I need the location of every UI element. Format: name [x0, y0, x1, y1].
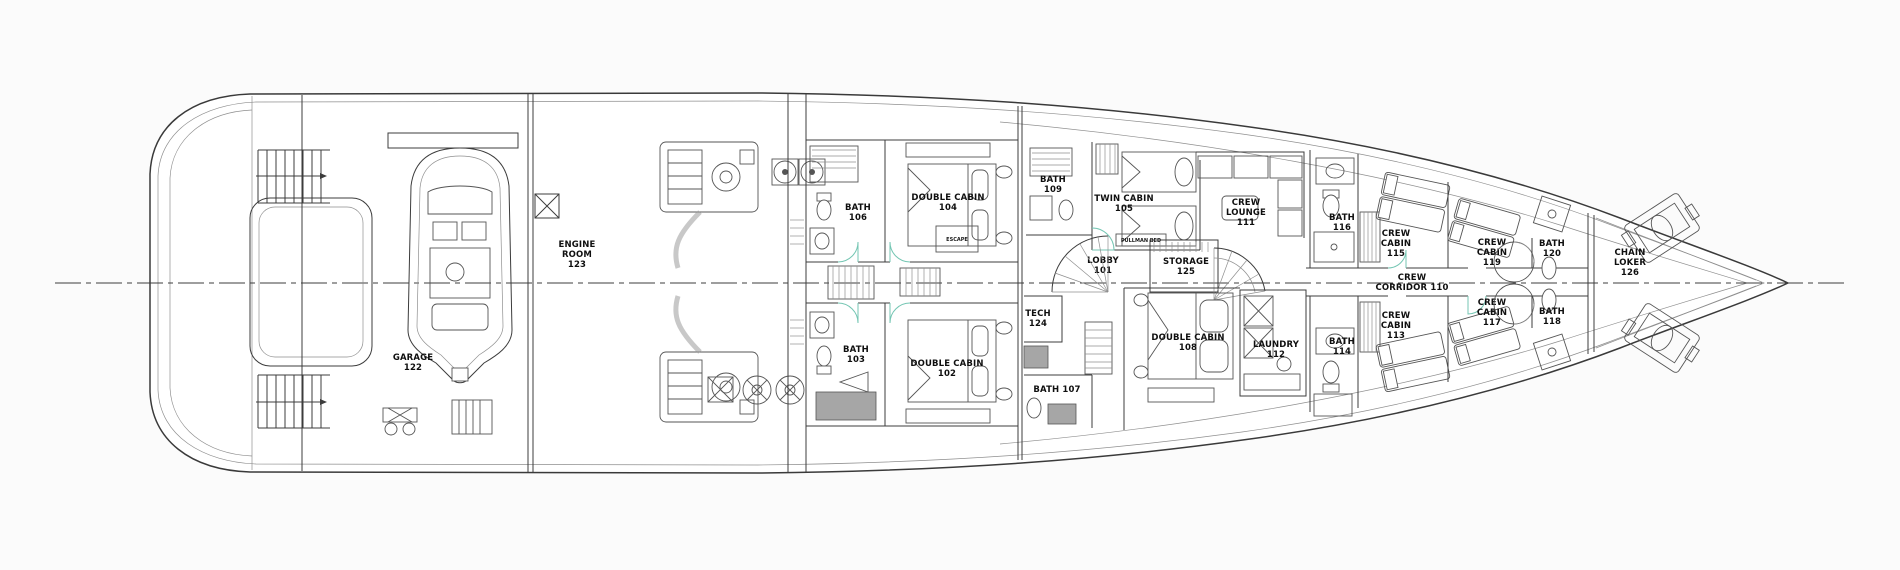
room-label-line: BATH [845, 203, 871, 213]
room-label-line: GARAGE [393, 353, 433, 363]
room-label-line: TECH [1025, 309, 1051, 319]
pillow [972, 366, 988, 396]
tender-drive [452, 368, 468, 381]
room-label-line: CREW [1478, 298, 1507, 308]
room-label-line: CABIN [1477, 308, 1507, 318]
deck-plan-page: GARAGE 122 [0, 0, 1900, 570]
toilet [1059, 200, 1073, 220]
room-label-line: DOUBLE CABIN [1151, 333, 1224, 343]
room-label-line: DOUBLE CABIN [910, 359, 983, 369]
room-label-line: 101 [1094, 266, 1112, 276]
room-label-line: 109 [1044, 185, 1062, 195]
room-label-line: STORAGE [1163, 257, 1209, 267]
tender-seat [462, 222, 486, 240]
room-label-line: ROOM [562, 250, 592, 260]
room-label-line: 118 [1543, 317, 1561, 327]
room-label-line: 106 [849, 213, 867, 223]
pillow [1175, 158, 1193, 186]
room-label-line: 115 [1387, 249, 1405, 259]
room-label-line: LAUNDRY [1253, 340, 1300, 350]
room-label-line: 123 [568, 260, 586, 270]
room-label-line: 108 [1179, 343, 1197, 353]
room-label-line: LOKER [1614, 258, 1646, 268]
room-label-line: BATH [1539, 239, 1565, 249]
pillow [1200, 300, 1228, 332]
room-label-line: BATH [1329, 213, 1355, 223]
room-label-line: 103 [847, 355, 865, 365]
room-label-line: TWIN CABIN [1094, 194, 1153, 204]
room-label-line: CREW [1382, 311, 1411, 321]
room-label-line: 104 [939, 203, 957, 213]
toilet [1323, 361, 1339, 383]
room-label-line: CREW [1232, 198, 1261, 208]
room-label-line: 114 [1333, 347, 1351, 357]
room-label-line: BATH 107 [1033, 385, 1080, 395]
room-label-line: 126 [1621, 268, 1639, 278]
pillow [1200, 340, 1228, 372]
room-label-line: CABIN [1381, 239, 1411, 249]
room-label-line: CREW [1398, 273, 1427, 283]
room-label-line: LOUNGE [1226, 208, 1266, 218]
room-label-line: 102 [938, 369, 956, 379]
room-label-line: 119 [1483, 258, 1501, 268]
toilet [1027, 398, 1041, 418]
room-label-line: BATH [1539, 307, 1565, 317]
toilet [817, 346, 831, 366]
room-label-line: 120 [1543, 249, 1561, 259]
room-label-line: CORRIDOR 110 [1375, 283, 1448, 293]
room-label-line: BATH [1329, 337, 1355, 347]
pillow [972, 210, 988, 240]
room-label-line: CREW [1382, 229, 1411, 239]
room-label-line: 117 [1483, 318, 1501, 328]
room-label-line: 111 [1237, 218, 1255, 228]
pillow [972, 326, 988, 356]
vanity [1048, 404, 1076, 424]
tender-seat [433, 222, 457, 240]
room-label-line: ENGINE [559, 240, 596, 250]
room-label-line: 124 [1029, 319, 1047, 329]
room-label-line: 122 [404, 363, 422, 373]
pillow [1175, 212, 1193, 240]
room-label-line: CHAIN [1615, 248, 1646, 258]
escape-note: ESCAPE [946, 237, 968, 243]
room-label-line: 125 [1177, 267, 1195, 277]
deck-plan-drawing: GARAGE 122 [0, 0, 1900, 570]
room-label-line: CREW [1478, 238, 1507, 248]
tender-aft-seat [432, 304, 488, 330]
toilet [1542, 257, 1556, 279]
room-label-line: BATH [1040, 175, 1066, 185]
room-label-line: 116 [1333, 223, 1351, 233]
room-label-line: 113 [1387, 331, 1405, 341]
shower-tray [816, 392, 876, 420]
room-label-line: CABIN [1477, 248, 1507, 258]
room-label-line: DOUBLE CABIN [911, 193, 984, 203]
room-label-line: CABIN [1381, 321, 1411, 331]
room-label-line: 105 [1115, 204, 1133, 214]
room-label-line: BATH [843, 345, 869, 355]
pullman-bed-note: PULLMAN BED [1121, 238, 1161, 244]
room-label-line: 112 [1267, 350, 1285, 360]
tech-cabinet [1024, 346, 1048, 368]
